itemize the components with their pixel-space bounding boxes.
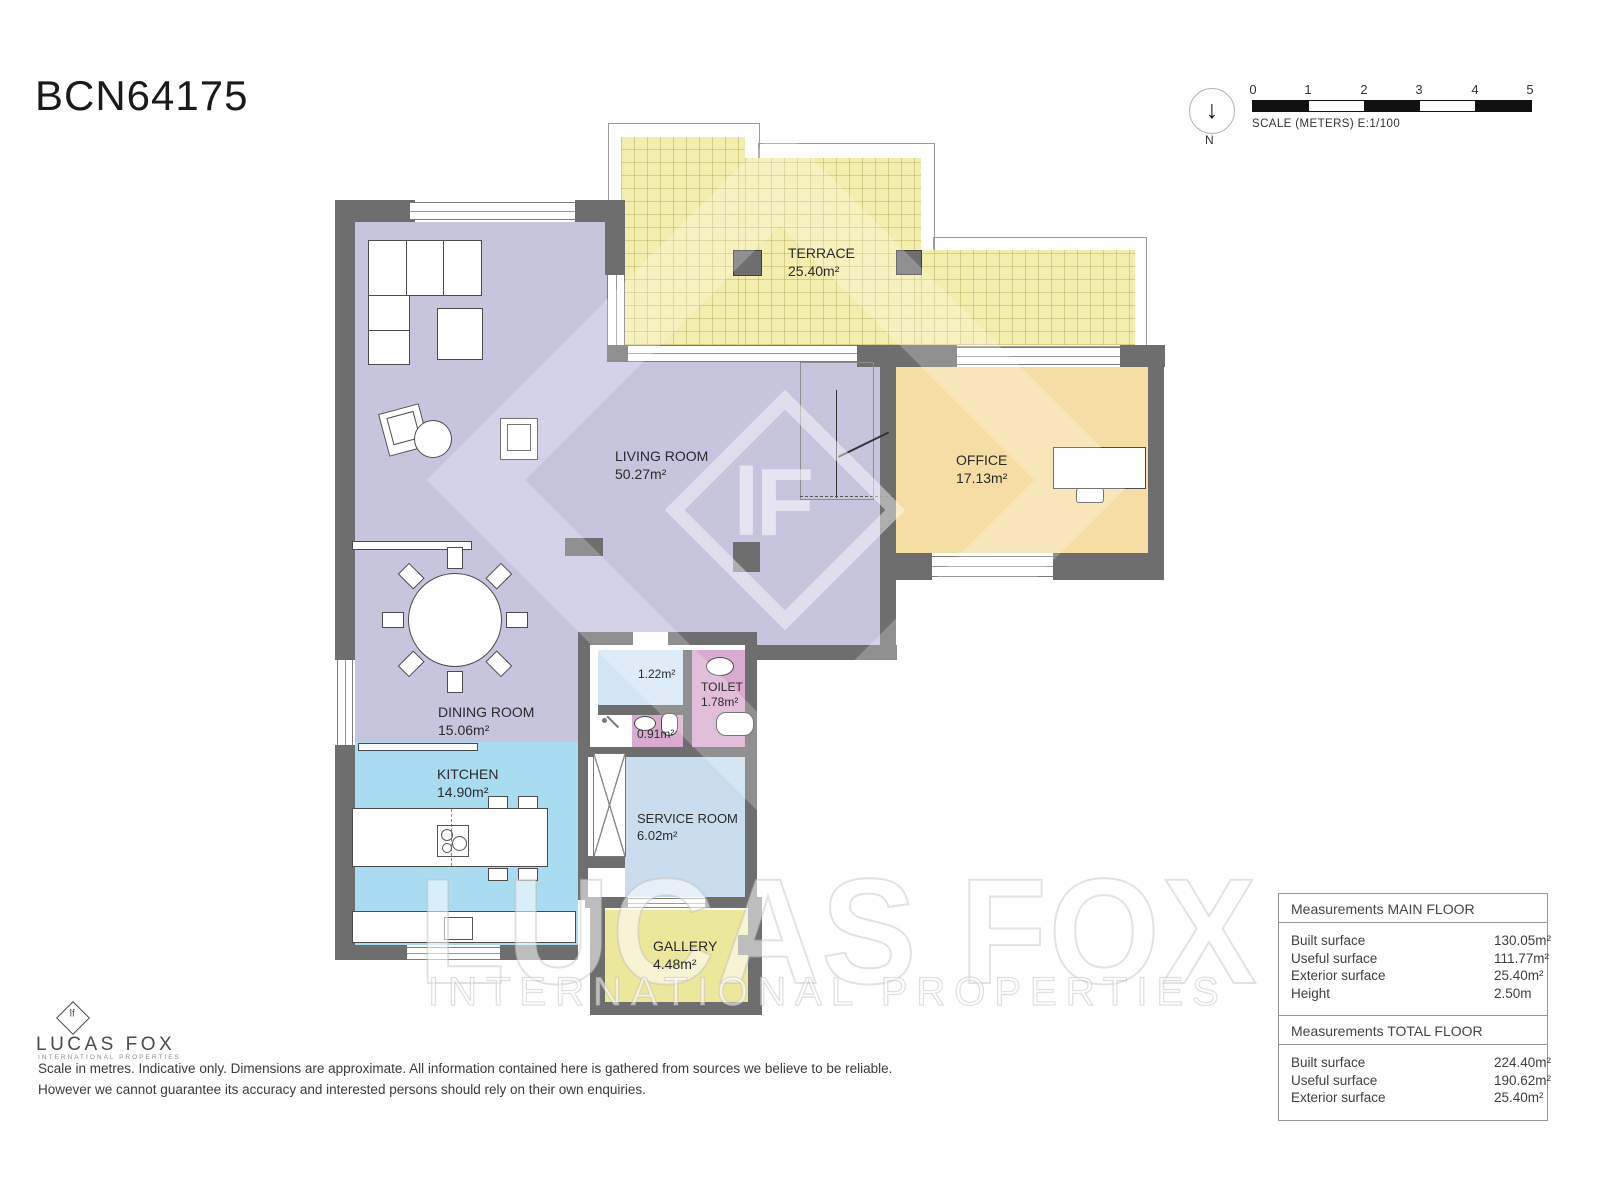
room-label-kitchen: KITCHEN 14.90m² xyxy=(437,765,498,801)
kitchen-counter xyxy=(358,743,478,751)
lucasfox-logo-diamond: lf xyxy=(56,1001,90,1035)
sliding-window xyxy=(628,345,857,362)
row-label: Useful surface xyxy=(1291,1073,1377,1088)
cooktop xyxy=(437,825,469,857)
wall-segment xyxy=(748,897,762,1015)
row-label: Useful surface xyxy=(1291,951,1377,966)
table-header-main-floor: Measurements MAIN FLOOR xyxy=(1279,894,1547,923)
room-name: KITCHEN xyxy=(437,765,498,783)
table-body: Built surface224.40m² Useful surface190.… xyxy=(1279,1045,1547,1120)
room-label-service: SERVICE ROOM 6.02m² xyxy=(637,810,738,844)
dining-set xyxy=(408,573,502,667)
dining-chair xyxy=(447,671,463,693)
room-name: TERRACE xyxy=(788,244,855,262)
room-label-toilet: TOILET 1.78m² xyxy=(701,680,743,710)
window xyxy=(932,556,1053,577)
stair-break-line xyxy=(800,496,893,497)
page-title: BCN64175 xyxy=(35,72,248,120)
scale-caption: SCALE (METERS) E:1/100 xyxy=(1252,118,1400,130)
wall-segment xyxy=(598,705,692,715)
table-row: Height2.50m xyxy=(1279,986,1547,1004)
wall-segment xyxy=(578,632,590,753)
terrace-pillar xyxy=(896,250,922,275)
room-label-office: OFFICE 17.13m² xyxy=(956,451,1007,487)
disclaimer-line-1: Scale in metres. Indicative only. Dimens… xyxy=(38,1061,892,1076)
terrace-floor xyxy=(621,137,745,345)
room-label-living: LIVING ROOM 50.27m² xyxy=(615,447,708,483)
dining-chair xyxy=(447,547,463,569)
scale-tick: 0 xyxy=(1249,82,1256,97)
row-value: 130.05m² xyxy=(1494,933,1551,948)
table-row: Exterior surface25.40m² xyxy=(1279,968,1547,986)
row-value: 224.40m² xyxy=(1494,1055,1551,1070)
window xyxy=(410,202,575,220)
terrace-door xyxy=(607,275,625,345)
window xyxy=(957,347,1120,365)
scale-bar xyxy=(1252,100,1532,112)
desk-chair xyxy=(1076,488,1104,503)
north-label: N xyxy=(1205,133,1214,147)
kitchen-counter xyxy=(352,911,576,943)
row-label: Built surface xyxy=(1291,933,1365,948)
scale-tick: 4 xyxy=(1471,82,1478,97)
lucasfox-logo-subtitle: INTERNATIONAL PROPERTIES xyxy=(38,1054,181,1061)
room-label-gallery: GALLERY 4.48m² xyxy=(653,937,717,973)
table-row: Useful surface190.62m² xyxy=(1279,1073,1547,1091)
wall-segment xyxy=(757,645,897,660)
table-body: Built surface130.05m² Useful surface111.… xyxy=(1279,923,1547,1015)
room-area: 1.78m² xyxy=(701,695,743,710)
table-header-total-floor: Measurements TOTAL FLOOR xyxy=(1279,1015,1547,1045)
watermark-brand-subtext: INTERNATIONAL PROPERTIES xyxy=(428,970,1228,1015)
north-arrow-icon: ↓ xyxy=(1206,96,1219,124)
wall-segment xyxy=(590,1002,762,1015)
wall-segment xyxy=(880,362,896,660)
row-value: 25.40m² xyxy=(1494,968,1544,983)
wall-segment xyxy=(745,632,757,897)
room-name: DINING ROOM xyxy=(438,703,534,721)
kitchen-sink xyxy=(444,917,473,940)
kitchen-chair xyxy=(518,868,538,881)
row-label: Built surface xyxy=(1291,1055,1365,1070)
bathtub xyxy=(716,712,754,736)
wall-segment xyxy=(738,935,750,955)
table-row: Useful surface111.77m² xyxy=(1279,951,1547,969)
structural-column xyxy=(733,542,760,572)
room-label-terrace: TERRACE 25.40m² xyxy=(788,244,855,280)
room-label-storage: 1.22m² xyxy=(638,667,675,682)
window xyxy=(407,947,500,960)
room-area: 1.22m² xyxy=(638,667,675,682)
wall-segment xyxy=(1148,345,1164,580)
disclaimer-line-2: However we cannot guarantee its accuracy… xyxy=(38,1082,646,1097)
table-row: Built surface130.05m² xyxy=(1279,933,1547,951)
wall-segment xyxy=(588,856,625,868)
scale-tick: 1 xyxy=(1304,82,1311,97)
window xyxy=(337,660,353,745)
room-area: 50.27m² xyxy=(615,465,708,483)
wall-segment xyxy=(585,897,628,908)
terrace-pillar xyxy=(733,250,762,276)
dining-chair xyxy=(506,612,528,628)
room-area: 6.02m² xyxy=(637,827,738,844)
room-name: SERVICE ROOM xyxy=(637,810,738,827)
logo-monogram: lf xyxy=(70,1008,75,1019)
wall-segment xyxy=(705,897,757,908)
wall-segment xyxy=(668,632,757,645)
side-table xyxy=(414,420,452,458)
floorplan-page: BCN64175 ↓ N 0 1 2 3 4 5 SCALE (METERS) … xyxy=(0,0,1600,1200)
lucasfox-logo-name: LUCAS FOX xyxy=(36,1034,175,1056)
room-name: TOILET xyxy=(701,680,743,695)
wall-segment xyxy=(335,200,415,222)
wall-segment xyxy=(590,897,605,1015)
scale-tick: 5 xyxy=(1526,82,1533,97)
row-value: 2.50m xyxy=(1494,986,1532,1001)
table-row: Exterior surface25.40m² xyxy=(1279,1090,1547,1108)
scale-tick: 2 xyxy=(1360,82,1367,97)
sink xyxy=(706,657,734,676)
room-area: 0.91m² xyxy=(637,727,674,742)
row-label: Exterior surface xyxy=(1291,968,1386,983)
wall-segment xyxy=(1053,553,1148,580)
table-row: Built surface224.40m² xyxy=(1279,1055,1547,1073)
room-name: OFFICE xyxy=(956,451,1007,469)
sofa xyxy=(368,295,410,365)
dining-table xyxy=(408,573,502,667)
room-label-wc: 0.91m² xyxy=(637,727,674,742)
wall-segment xyxy=(578,757,588,900)
row-value: 25.40m² xyxy=(1494,1090,1544,1105)
scale-tick: 3 xyxy=(1415,82,1422,97)
measurements-table: Measurements MAIN FLOOR Built surface130… xyxy=(1278,893,1548,1121)
shower-head-icon xyxy=(602,718,607,723)
desk xyxy=(1053,447,1146,489)
room-area: 4.48m² xyxy=(653,955,717,973)
room-name: GALLERY xyxy=(653,937,717,955)
kitchen-chair xyxy=(488,868,508,881)
room-label-dining: DINING ROOM 15.06m² xyxy=(438,703,534,739)
wall-segment xyxy=(607,345,628,362)
room-area: 17.13m² xyxy=(956,469,1007,487)
staircase xyxy=(800,362,874,500)
room-area: 14.90m² xyxy=(437,783,498,801)
dining-chair xyxy=(382,612,404,628)
armchair xyxy=(437,308,483,360)
room-area: 15.06m² xyxy=(438,721,534,739)
wall-segment xyxy=(683,650,692,747)
north-indicator: ↓ xyxy=(1189,88,1235,134)
row-value: 190.62m² xyxy=(1494,1073,1551,1088)
row-label: Exterior surface xyxy=(1291,1090,1386,1105)
window xyxy=(628,898,705,908)
stair-rail-line xyxy=(836,390,837,498)
wall-segment xyxy=(500,945,578,960)
kitchen-island xyxy=(352,808,548,867)
structural-column xyxy=(565,538,603,556)
row-value: 111.77m² xyxy=(1494,951,1549,966)
sofa xyxy=(368,240,482,296)
terrace-floor xyxy=(921,250,1135,345)
wall-segment xyxy=(335,200,355,660)
wall-segment xyxy=(335,945,407,960)
row-label: Height xyxy=(1291,986,1330,1001)
room-name: LIVING ROOM xyxy=(615,447,708,465)
room-area: 25.40m² xyxy=(788,262,855,280)
armchair xyxy=(500,418,538,460)
wall-segment xyxy=(605,200,625,275)
wardrobe xyxy=(593,753,626,857)
